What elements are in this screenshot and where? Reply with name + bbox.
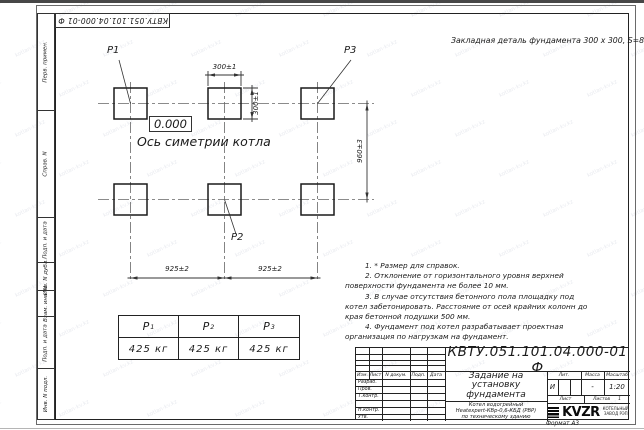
load-table-value-p1: 425 кг bbox=[119, 338, 179, 360]
corner-doc-stamp: КВТУ.051.101.04.000-01 Ф bbox=[55, 13, 170, 28]
scan-edge-top bbox=[0, 0, 644, 3]
note-3: 3. В случае отсутствия бетонного пола пл… bbox=[345, 292, 588, 323]
mass-value: - bbox=[581, 379, 604, 395]
sheets-value: 1 bbox=[618, 397, 621, 402]
load-table-value-p3: 425 кг bbox=[239, 338, 299, 360]
row-nkontr: Н.контр. bbox=[358, 408, 379, 413]
kvzr-logo-subtitle: КОТЕЛЬНЫЙ ЗАВОД РЭП bbox=[603, 407, 629, 416]
margin-stamp-podp-data-2: Подп. и дата bbox=[37, 316, 55, 369]
embed-detail-note: Закладная деталь фундамента 300 х 300, S… bbox=[451, 36, 644, 45]
col-izm: Изм. bbox=[356, 371, 369, 379]
col-podp: Подп. bbox=[410, 371, 427, 379]
lit-value: И bbox=[547, 379, 558, 395]
lit-label: Лит. bbox=[547, 371, 581, 379]
dimension-row-spacing: 960±3 bbox=[356, 131, 364, 171]
col-doc: N докум. bbox=[382, 371, 410, 379]
scale-label: Масштаб bbox=[604, 371, 630, 379]
drawing-sheet: kotlan-kv.kzkotlan-kv.kzkotlan-kv.kzkotl… bbox=[0, 0, 644, 430]
load-table-value-p2: 425 кг bbox=[179, 338, 239, 360]
point-label-p2: P2 bbox=[231, 232, 243, 243]
elevation-mark: 0.000 bbox=[149, 116, 192, 132]
margin-stamp-vzam-inv: Взам. инв. N bbox=[37, 290, 55, 317]
load-table-header-p3: P3 bbox=[239, 316, 299, 338]
note-1: 1. * Размер для справок. bbox=[345, 261, 588, 271]
format-label: Формат А3 bbox=[546, 421, 579, 427]
row-prov: Пров. bbox=[358, 387, 372, 392]
sheets-label: Листов bbox=[593, 397, 610, 402]
col-list: Лист bbox=[369, 371, 382, 379]
company-logo: KVZR КОТЕЛЬНЫЙ ЗАВОД РЭП bbox=[547, 403, 630, 421]
scan-edge-bottom bbox=[0, 428, 644, 429]
dimension-span-left: 925±2 bbox=[157, 265, 197, 273]
corner-doc-number: КВТУ.051.101.04.000-01 Ф bbox=[58, 16, 168, 25]
load-table-header-p2: P2 bbox=[179, 316, 239, 338]
kvzr-logo-text: KVZR bbox=[562, 405, 600, 420]
title-name: Задание на установку фундамента bbox=[445, 372, 547, 400]
sheets-cell: Листов 1 bbox=[584, 395, 630, 403]
dimension-plate-width: 300±1 bbox=[207, 63, 242, 71]
row-utv: Утв. bbox=[358, 415, 368, 420]
technical-notes: 1. * Размер для справок. 2. Отклонение о… bbox=[345, 261, 588, 343]
scale-value: 1:20 bbox=[604, 379, 630, 395]
margin-stamp-perv-primen: Перв. примен. bbox=[37, 13, 55, 111]
margin-stamp-podp-data-1: Подп. и дата bbox=[37, 217, 55, 263]
mass-label: Масса bbox=[581, 371, 604, 379]
title-block: КВТУ.051.101.04.000-01 Ф Изм. Лист N док… bbox=[355, 347, 629, 420]
point-label-p3: P3 bbox=[344, 45, 356, 56]
product-name: Котел водогрейный Heatexpert-КВр-0,6-КБД… bbox=[441, 402, 551, 420]
dimension-span-right: 925±2 bbox=[250, 265, 290, 273]
note-4: 4. Фундамент под котел разрабатывает про… bbox=[345, 322, 588, 342]
row-tkontr: Т.контр. bbox=[358, 394, 379, 399]
margin-stamp-inv-podl: Инв. N подл. bbox=[37, 368, 55, 420]
title-doc-number: КВТУ.051.101.04.000-01 Ф bbox=[447, 349, 628, 370]
dimension-plate-height: 300±1 bbox=[252, 85, 260, 121]
point-label-p1: P1 bbox=[107, 45, 119, 56]
note-2: 2. Отклонение от горизонтального уровня … bbox=[345, 271, 588, 291]
col-data: Дата bbox=[427, 371, 445, 379]
load-table: P1 P2 P3 425 кг 425 кг 425 кг bbox=[118, 315, 300, 360]
boiler-axis-label: Ось симетрии котла bbox=[137, 134, 271, 149]
row-razrab: Разраб. bbox=[358, 380, 377, 385]
load-table-header-p1: P1 bbox=[119, 316, 179, 338]
kvzr-logo-icon bbox=[548, 407, 559, 418]
margin-stamp-sprav-n: Справ. N bbox=[37, 110, 55, 218]
sheet-label: Лист bbox=[547, 395, 584, 403]
